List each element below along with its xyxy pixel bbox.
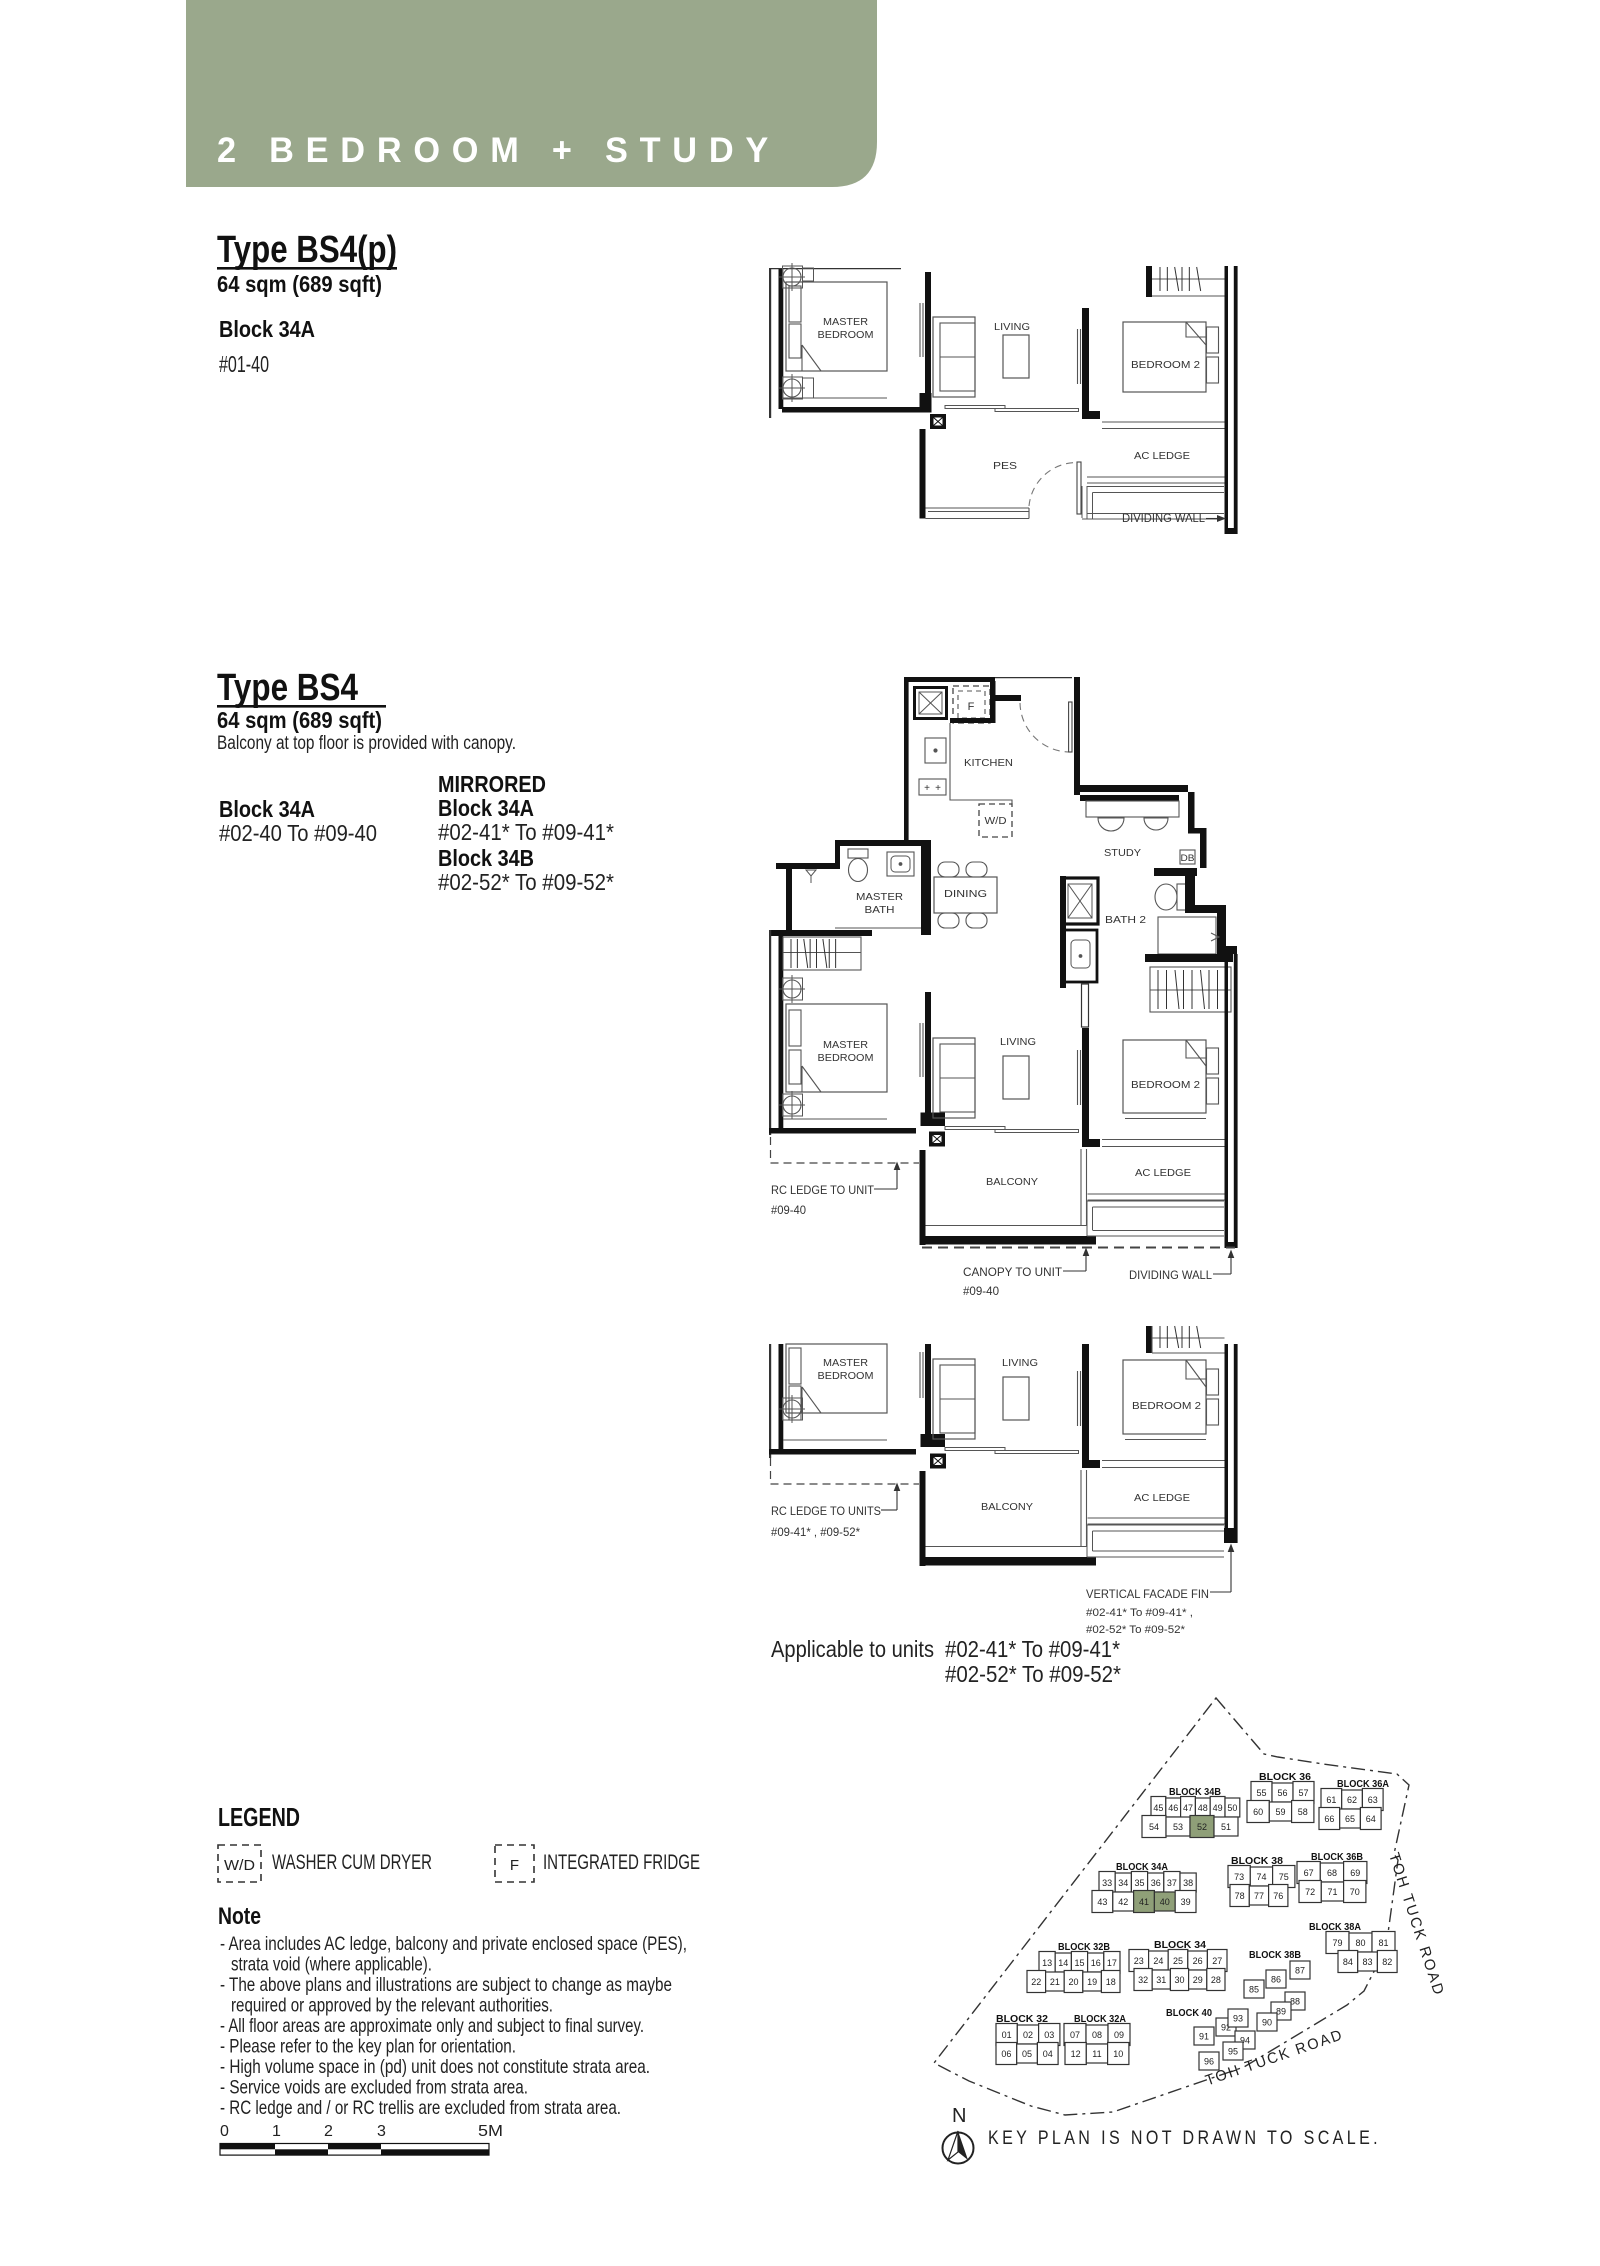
svg-text:64 sqm (689 sqft): 64 sqm (689 sqft): [217, 271, 382, 297]
svg-text:75: 75: [1279, 1872, 1289, 1882]
svg-text:VERTICAL FACADE FIN: VERTICAL FACADE FIN: [1086, 1589, 1209, 1601]
svg-text:#09-41* , #09-52*: #09-41* , #09-52*: [771, 1527, 861, 1539]
svg-text:01: 01: [1002, 2030, 1012, 2040]
svg-text:#02-52* To #09-52*: #02-52* To #09-52*: [1086, 1624, 1186, 1636]
svg-text:STUDY: STUDY: [1104, 847, 1141, 859]
svg-text:91: 91: [1199, 2032, 1209, 2042]
svg-text:#09-40: #09-40: [963, 1286, 999, 1298]
svg-text:RC LEDGE TO UNITS: RC LEDGE TO UNITS: [771, 1506, 881, 1518]
svg-text:+: +: [924, 783, 930, 794]
svg-text:76: 76: [1273, 1891, 1283, 1901]
svg-text:MIRRORED: MIRRORED: [438, 771, 546, 797]
svg-text:83: 83: [1363, 1957, 1373, 1967]
svg-text:LIVING: LIVING: [1000, 1036, 1036, 1048]
svg-text:- High volume space in (pd) un: - High volume space in (pd) unit does no…: [220, 2056, 650, 2078]
svg-text:BLOCK 40: BLOCK 40: [1166, 2007, 1212, 2019]
svg-text:strata void (where applicable): strata void (where applicable).: [231, 1954, 432, 1976]
svg-text:Note: Note: [218, 1903, 261, 1930]
svg-text:Applicable to units: Applicable to units: [771, 1636, 934, 1662]
svg-text:35: 35: [1134, 1878, 1144, 1888]
svg-text:LIVING: LIVING: [994, 321, 1030, 333]
svg-text:77: 77: [1254, 1891, 1264, 1901]
svg-text:13: 13: [1042, 1958, 1052, 1968]
svg-text:Balcony at top floor is provid: Balcony at top floor is provided with ca…: [217, 733, 516, 754]
svg-text:20: 20: [1068, 1977, 1078, 1987]
svg-text:2: 2: [324, 2123, 333, 2140]
svg-text:42: 42: [1118, 1897, 1128, 1907]
svg-text:24: 24: [1153, 1956, 1163, 1966]
svg-text:0: 0: [220, 2123, 229, 2140]
svg-text:Block 34A: Block 34A: [219, 316, 315, 342]
svg-text:54: 54: [1149, 1822, 1159, 1832]
svg-text:18: 18: [1106, 1977, 1116, 1987]
svg-text:AC LEDGE: AC LEDGE: [1135, 1167, 1191, 1179]
svg-text:- Service voids are excluded f: - Service voids are excluded from strata…: [220, 2077, 528, 2099]
svg-text:23: 23: [1134, 1956, 1144, 1966]
svg-text:96: 96: [1204, 2057, 1214, 2067]
svg-text:LEGEND: LEGEND: [218, 1802, 300, 1832]
svg-text:81: 81: [1378, 1938, 1388, 1948]
svg-text:12: 12: [1071, 2049, 1081, 2059]
svg-text:80: 80: [1355, 1938, 1365, 1948]
svg-text:30: 30: [1174, 1975, 1184, 1985]
svg-text:MASTER: MASTER: [823, 1039, 868, 1051]
svg-text:Block 34B: Block 34B: [438, 845, 534, 871]
svg-text:04: 04: [1043, 2049, 1053, 2059]
svg-text:38: 38: [1183, 1878, 1193, 1888]
svg-text:INTEGRATED FRIDGE: INTEGRATED FRIDGE: [543, 1851, 700, 1874]
svg-text:74: 74: [1256, 1872, 1266, 1882]
svg-text:KITCHEN: KITCHEN: [964, 757, 1013, 769]
svg-text:40: 40: [1160, 1897, 1170, 1907]
svg-text:61: 61: [1326, 1795, 1336, 1805]
svg-text:- All floor areas are approxim: - All floor areas are approximate only a…: [220, 2015, 644, 2037]
svg-text:- Please refer to the key plan: - Please refer to the key plan for orien…: [220, 2036, 516, 2058]
svg-text:DIVIDING WALL: DIVIDING WALL: [1129, 1270, 1213, 1282]
svg-text:31: 31: [1156, 1975, 1166, 1985]
svg-text:03: 03: [1044, 2030, 1054, 2040]
svg-text:95: 95: [1228, 2047, 1238, 2057]
svg-text:90: 90: [1262, 2018, 1272, 2028]
svg-text:+: +: [935, 783, 941, 794]
svg-text:BEDROOM 2: BEDROOM 2: [1131, 1079, 1200, 1091]
svg-text:BEDROOM 2: BEDROOM 2: [1132, 1400, 1201, 1412]
svg-text:- Area includes AC ledge, balc: - Area includes AC ledge, balcony and pr…: [220, 1933, 687, 1955]
svg-text:LIVING: LIVING: [1002, 1357, 1038, 1369]
svg-text:15: 15: [1074, 1958, 1084, 1968]
svg-text:MASTER: MASTER: [856, 891, 903, 903]
svg-text:W/D: W/D: [985, 816, 1007, 827]
svg-text:71: 71: [1327, 1887, 1337, 1897]
svg-text:57: 57: [1298, 1788, 1308, 1798]
svg-text:51: 51: [1221, 1822, 1231, 1832]
svg-text:65: 65: [1345, 1814, 1355, 1824]
svg-text:- The above plans and illustra: - The above plans and illustrations are …: [220, 1974, 672, 1996]
svg-text:26: 26: [1193, 1956, 1203, 1966]
svg-text:60: 60: [1253, 1807, 1263, 1817]
svg-text:29: 29: [1193, 1975, 1203, 1985]
svg-text:59: 59: [1275, 1807, 1285, 1817]
svg-text:KEY PLAN IS NOT DRAWN TO SCALE: KEY PLAN IS NOT DRAWN TO SCALE.: [988, 2128, 1381, 2149]
svg-text:1: 1: [272, 2123, 281, 2140]
svg-text:64 sqm (689 sqft): 64 sqm (689 sqft): [217, 707, 382, 733]
svg-text:39: 39: [1181, 1897, 1191, 1907]
svg-text:73: 73: [1234, 1872, 1244, 1882]
svg-text:87: 87: [1295, 1966, 1305, 1976]
svg-text:W/D: W/D: [224, 1857, 255, 1874]
svg-text:21: 21: [1050, 1977, 1060, 1987]
svg-text:#02-40 To #09-40: #02-40 To #09-40: [219, 820, 377, 846]
svg-text:BALCONY: BALCONY: [981, 1501, 1033, 1513]
svg-text:MASTER: MASTER: [823, 316, 868, 328]
svg-text:56: 56: [1277, 1788, 1287, 1798]
svg-text:Block 34A: Block 34A: [219, 796, 315, 822]
svg-text:#09-40: #09-40: [771, 1205, 806, 1217]
svg-text:58: 58: [1298, 1807, 1308, 1817]
svg-text:25: 25: [1173, 1956, 1183, 1966]
svg-text:33: 33: [1102, 1878, 1112, 1888]
svg-text:05: 05: [1022, 2049, 1032, 2059]
svg-text:27: 27: [1212, 1956, 1222, 1966]
svg-text:#02-41* To #09-41*: #02-41* To #09-41*: [438, 819, 614, 845]
svg-text:BEDROOM: BEDROOM: [818, 329, 874, 341]
svg-text:#01-40: #01-40: [219, 351, 269, 377]
svg-text:F: F: [510, 1857, 519, 1874]
svg-text:50: 50: [1227, 1803, 1237, 1813]
svg-text:16: 16: [1091, 1958, 1101, 1968]
svg-text:3: 3: [377, 2123, 386, 2140]
svg-text:79: 79: [1332, 1938, 1342, 1948]
svg-text:47: 47: [1183, 1803, 1193, 1813]
svg-text:43: 43: [1097, 1897, 1107, 1907]
svg-text:#02-41* To #09-41*: #02-41* To #09-41*: [945, 1636, 1120, 1662]
svg-text:F: F: [968, 701, 975, 713]
svg-text:#02-52* To #09-52*: #02-52* To #09-52*: [945, 1661, 1121, 1687]
svg-text:BEDROOM: BEDROOM: [818, 1052, 874, 1064]
svg-text:52: 52: [1197, 1822, 1207, 1832]
svg-text:14: 14: [1058, 1958, 1068, 1968]
svg-text:70: 70: [1350, 1887, 1360, 1897]
svg-text:DB: DB: [1181, 853, 1195, 864]
svg-text:63: 63: [1368, 1795, 1378, 1805]
svg-text:#02-52* To #09-52*: #02-52* To #09-52*: [438, 869, 614, 895]
svg-text:PES: PES: [993, 460, 1017, 472]
svg-text:TOH TUCK ROAD: TOH TUCK ROAD: [1385, 1851, 1448, 1999]
svg-text:06: 06: [1001, 2049, 1011, 2059]
svg-text:49: 49: [1213, 1803, 1223, 1813]
svg-text:41: 41: [1139, 1897, 1149, 1907]
svg-text:required or approved by the re: required or approved by the relevant aut…: [231, 1995, 553, 2017]
svg-text:17: 17: [1107, 1958, 1117, 1968]
svg-text:68: 68: [1327, 1868, 1337, 1878]
svg-text:32: 32: [1138, 1975, 1148, 1985]
svg-text:62: 62: [1347, 1795, 1357, 1805]
svg-text:- RC ledge and / or RC trellis: - RC ledge and / or RC trellis are exclu…: [220, 2097, 621, 2119]
svg-text:N: N: [952, 2105, 966, 2127]
svg-text:45: 45: [1153, 1803, 1163, 1813]
svg-text:DINING: DINING: [944, 888, 987, 900]
svg-text:22: 22: [1031, 1977, 1041, 1987]
svg-text:10: 10: [1113, 2049, 1123, 2059]
svg-text:67: 67: [1304, 1868, 1314, 1878]
svg-text:RC LEDGE TO UNIT: RC LEDGE TO UNIT: [771, 1185, 874, 1197]
svg-text:64: 64: [1366, 1814, 1376, 1824]
svg-text:69: 69: [1350, 1868, 1360, 1878]
svg-text:86: 86: [1271, 1975, 1281, 1985]
svg-text:53: 53: [1173, 1822, 1183, 1832]
svg-text:48: 48: [1198, 1803, 1208, 1813]
svg-text:WASHER CUM DRYER: WASHER CUM DRYER: [272, 1851, 432, 1874]
svg-text:36: 36: [1151, 1878, 1161, 1888]
svg-text:78: 78: [1235, 1891, 1245, 1901]
svg-text:66: 66: [1324, 1814, 1334, 1824]
svg-text:AC LEDGE: AC LEDGE: [1134, 450, 1190, 462]
svg-text:37: 37: [1167, 1878, 1177, 1888]
svg-text:34: 34: [1118, 1878, 1128, 1888]
svg-text:55: 55: [1256, 1788, 1266, 1798]
svg-text:85: 85: [1249, 1985, 1259, 1995]
svg-text:Block 34A: Block 34A: [438, 795, 534, 821]
svg-text:CANOPY TO UNIT: CANOPY TO UNIT: [963, 1267, 1062, 1279]
svg-text:BEDROOM 2: BEDROOM 2: [1131, 359, 1200, 371]
svg-text:Type BS4: Type BS4: [217, 667, 358, 709]
svg-text:DIVIDING WALL: DIVIDING WALL: [1122, 513, 1206, 525]
svg-text:BATH: BATH: [865, 904, 895, 916]
svg-text:11: 11: [1092, 2049, 1101, 2059]
svg-text:19: 19: [1087, 1977, 1097, 1987]
svg-text:AC LEDGE: AC LEDGE: [1134, 1492, 1190, 1504]
svg-text:2 BEDROOM + STUDY: 2 BEDROOM + STUDY: [217, 131, 780, 170]
svg-text:5M: 5M: [478, 2123, 503, 2140]
svg-text:BALCONY: BALCONY: [986, 1176, 1038, 1188]
svg-text:BATH 2: BATH 2: [1105, 914, 1146, 926]
svg-text:#02-41* To #09-41* ,: #02-41* To #09-41* ,: [1086, 1607, 1193, 1619]
svg-text:Type BS4(p): Type BS4(p): [217, 229, 397, 271]
svg-text:07: 07: [1070, 2030, 1080, 2040]
svg-text:BLOCK 38B: BLOCK 38B: [1249, 1949, 1301, 1961]
svg-text:MASTER: MASTER: [823, 1357, 868, 1369]
svg-text:46: 46: [1168, 1803, 1178, 1813]
svg-text:02: 02: [1023, 2030, 1033, 2040]
svg-text:84: 84: [1343, 1957, 1353, 1967]
svg-text:72: 72: [1305, 1887, 1315, 1897]
svg-text:09: 09: [1114, 2030, 1124, 2040]
svg-text:BEDROOM: BEDROOM: [818, 1370, 874, 1382]
svg-text:82: 82: [1382, 1957, 1392, 1967]
svg-text:08: 08: [1092, 2030, 1102, 2040]
svg-text:28: 28: [1211, 1975, 1221, 1985]
svg-text:93: 93: [1233, 2014, 1243, 2024]
